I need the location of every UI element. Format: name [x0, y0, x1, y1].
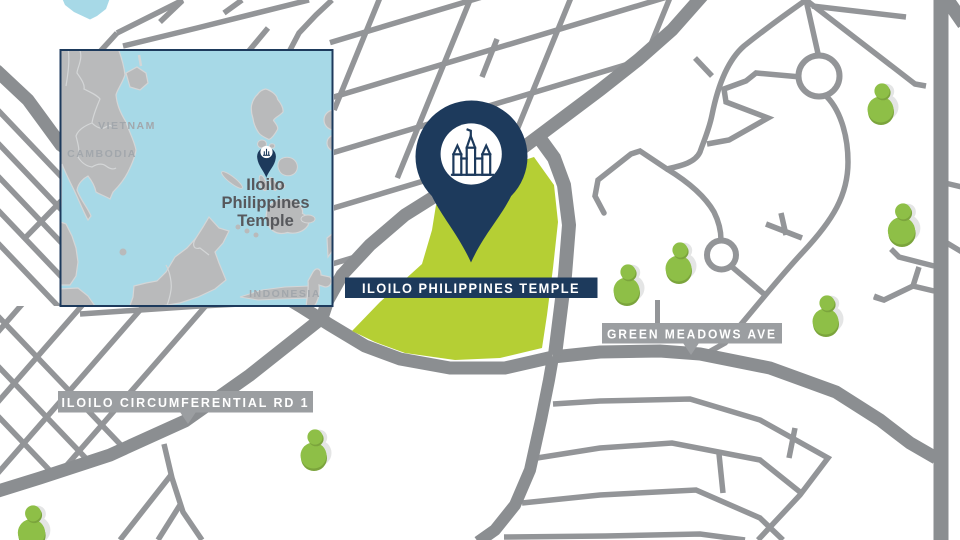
- svg-text:Iloilo: Iloilo: [246, 176, 285, 194]
- svg-text:GREEN MEADOWS AVE: GREEN MEADOWS AVE: [607, 328, 777, 342]
- svg-text:CAMBODIA: CAMBODIA: [67, 148, 137, 160]
- svg-text:Philippines: Philippines: [221, 194, 309, 212]
- svg-text:INDONESIA: INDONESIA: [249, 288, 321, 300]
- svg-text:Temple: Temple: [237, 212, 294, 230]
- svg-text:ILOILO CIRCUMFERENTIAL RD 1: ILOILO CIRCUMFERENTIAL RD 1: [62, 395, 310, 410]
- svg-text:ILOILO PHILIPPINES TEMPLE: ILOILO PHILIPPINES TEMPLE: [362, 280, 580, 296]
- svg-text:VIETNAM: VIETNAM: [98, 120, 156, 132]
